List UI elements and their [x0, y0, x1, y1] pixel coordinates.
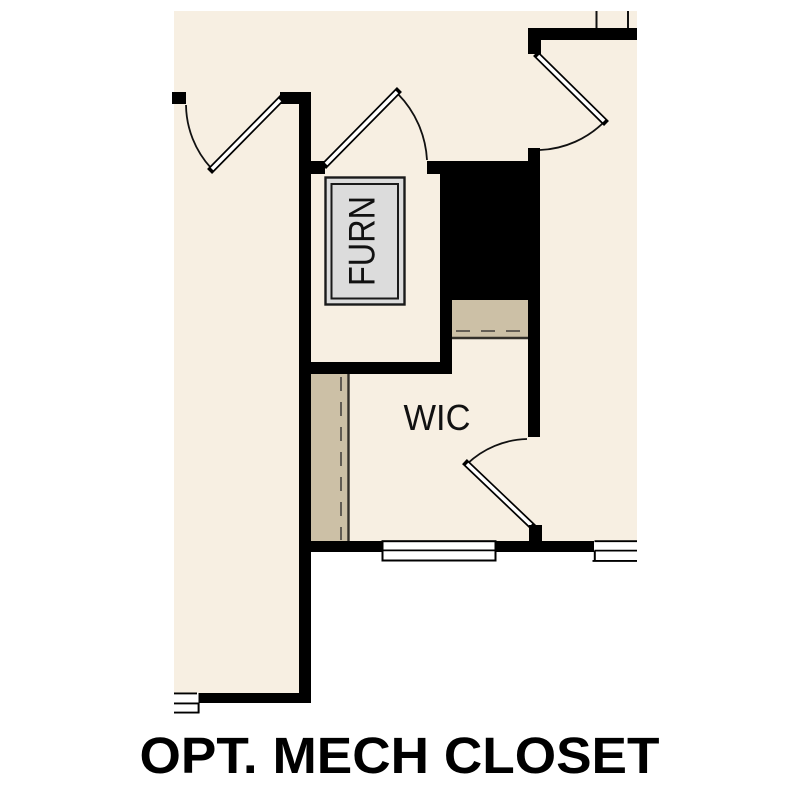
- svg-text:FURN: FURN: [341, 196, 383, 286]
- svg-text:WIC: WIC: [404, 397, 471, 438]
- svg-text:OPT. MECH CLOSET: OPT. MECH CLOSET: [140, 727, 660, 784]
